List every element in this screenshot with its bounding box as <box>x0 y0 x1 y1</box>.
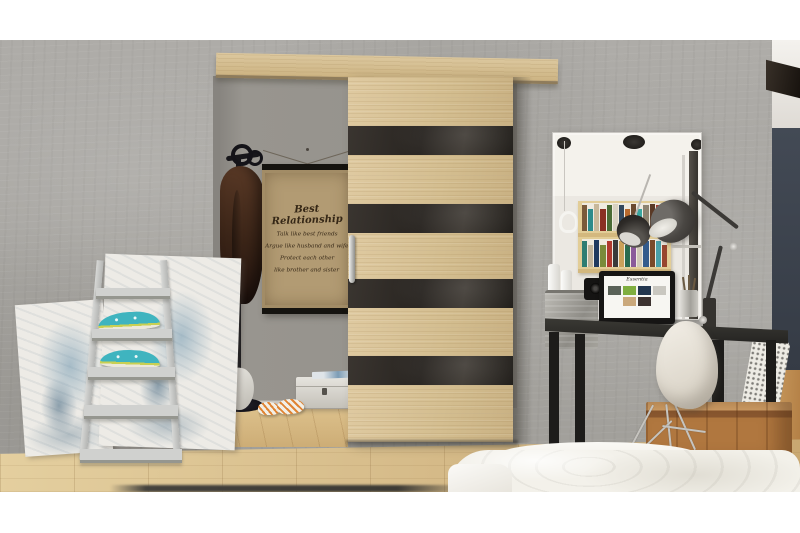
sliding-door <box>348 77 513 442</box>
color-swatch <box>613 240 618 267</box>
product-photo: Best Relationship Talk like best friends… <box>0 0 800 533</box>
color-swatch <box>607 205 612 231</box>
door-handle <box>349 235 355 283</box>
under-door-shadow <box>346 440 518 449</box>
lamp-clamp-knob <box>699 316 707 324</box>
color-swatch <box>607 241 612 267</box>
door-wood-panel <box>348 233 513 279</box>
door-wood-panel <box>348 77 513 126</box>
color-swatch <box>625 245 630 267</box>
window-sill <box>671 245 701 248</box>
color-swatch <box>594 204 599 231</box>
screen-content: Essentia <box>604 276 670 318</box>
desk-leg <box>766 340 776 410</box>
pencil-cup <box>679 290 698 317</box>
color-swatch <box>588 245 593 267</box>
ceiling-spotlight <box>691 139 702 150</box>
white-shell-chair <box>656 321 718 409</box>
color-swatch <box>619 241 624 267</box>
color-swatch <box>594 240 599 267</box>
ladder-shelf <box>92 329 172 341</box>
color-swatch <box>637 245 642 267</box>
ladder-shelf <box>84 405 178 419</box>
poster-title: Best Relationship <box>262 202 353 227</box>
door-wood-panel <box>348 308 513 356</box>
door-wood-panel <box>348 155 513 204</box>
color-swatch <box>582 241 587 267</box>
quote-poster: Best Relationship Talk like best friends… <box>262 164 352 314</box>
website-title: Essentia <box>617 276 658 282</box>
floor-shadow <box>110 485 470 492</box>
door-black-stripe <box>348 279 513 308</box>
color-swatch <box>638 286 651 295</box>
color-swatch <box>608 286 621 295</box>
color-swatch <box>638 297 651 306</box>
trunk-latch <box>322 388 327 395</box>
color-swatch <box>662 245 667 267</box>
photo-area: Best Relationship Talk like best friends… <box>0 40 800 492</box>
color-swatch <box>650 240 655 267</box>
door-shadow <box>513 77 533 443</box>
color-swatch <box>588 209 593 231</box>
ladder-shelf <box>88 367 175 380</box>
ceiling-spotlight <box>623 135 645 149</box>
white-canister <box>548 264 560 292</box>
ladder-shelf <box>96 288 170 299</box>
bed-pillow <box>448 464 512 492</box>
book-stack <box>581 189 597 191</box>
website-thumbnails <box>604 285 670 306</box>
headphones <box>559 211 578 233</box>
poster-line: Argue like husband and wife <box>265 243 348 250</box>
poster-line: Talk like best friends <box>277 231 338 238</box>
poster-line: like brother and sister <box>274 267 339 274</box>
lamp-joint <box>729 242 738 251</box>
color-swatch <box>582 205 587 231</box>
poster-line: Protect each other <box>280 255 334 262</box>
color-swatch <box>656 241 661 267</box>
color-swatch <box>623 297 636 306</box>
door-black-stripe <box>348 356 513 385</box>
door-wood-panel <box>348 385 513 442</box>
color-swatch <box>623 286 636 295</box>
desk-leg <box>549 332 559 450</box>
book-stack <box>623 189 651 192</box>
door-black-stripe <box>348 204 513 233</box>
color-swatch <box>600 209 605 231</box>
lamp-clamp <box>703 298 716 330</box>
desk-leg <box>575 334 585 450</box>
door-black-stripe <box>348 126 513 155</box>
coat-rack-hook <box>247 150 263 166</box>
color-swatch <box>653 286 666 295</box>
ladder-shelf <box>80 449 182 463</box>
color-swatch <box>600 245 605 267</box>
poster-nail <box>306 148 309 151</box>
hanging-cord <box>564 141 565 211</box>
